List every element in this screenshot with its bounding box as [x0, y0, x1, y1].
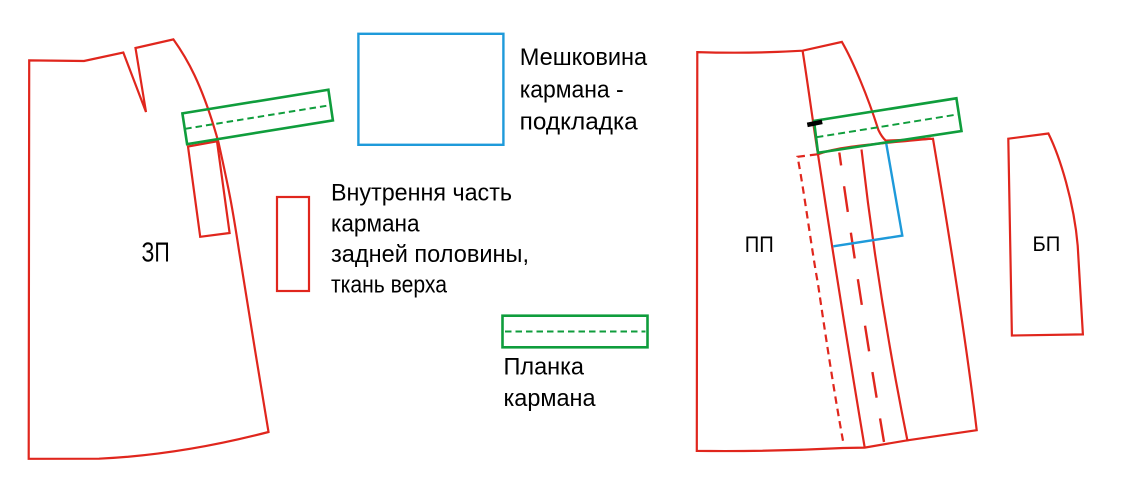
svg-text:задней половины,: задней половины, [331, 241, 529, 268]
svg-text:ПП: ПП [745, 232, 774, 257]
svg-text:кармана -: кармана - [520, 76, 624, 103]
svg-text:Внутрення часть: Внутрення часть [331, 180, 512, 207]
svg-text:Мешковина: Мешковина [520, 44, 648, 71]
svg-text:Планка: Планка [504, 353, 585, 380]
svg-text:ЗП: ЗП [142, 237, 170, 268]
svg-text:кармана: кармана [331, 210, 420, 237]
svg-text:кармана: кармана [504, 385, 597, 412]
svg-text:подкладка: подкладка [520, 109, 639, 136]
svg-text:ткань верха: ткань верха [331, 272, 448, 299]
svg-text:БП: БП [1033, 232, 1061, 256]
